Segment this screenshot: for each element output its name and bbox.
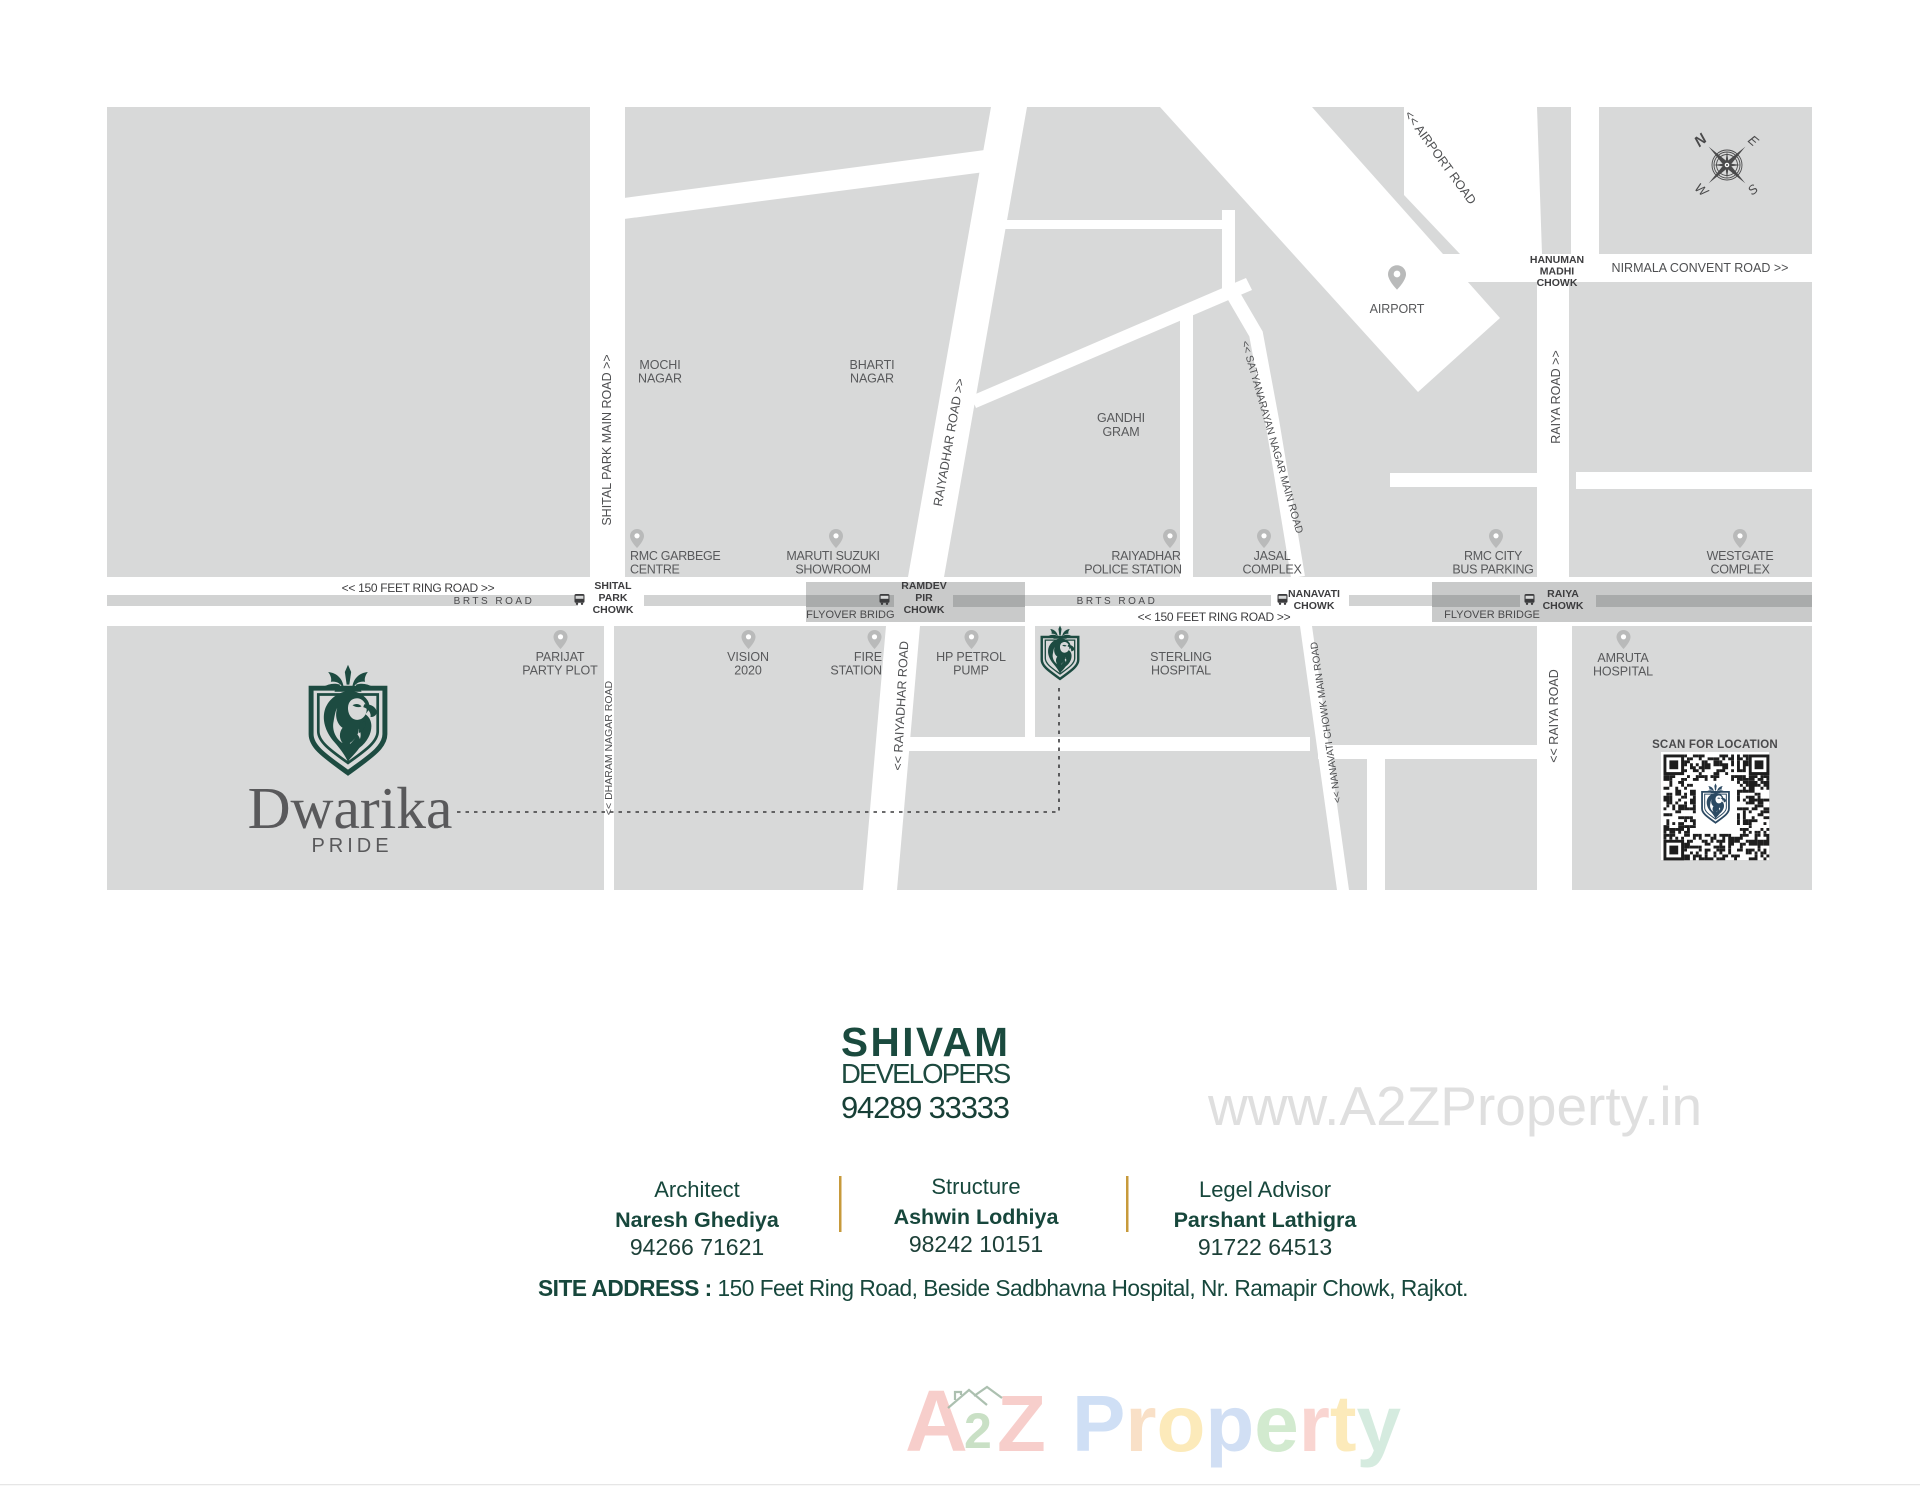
- svg-text:Structure: Structure: [931, 1174, 1020, 1199]
- svg-text:SHOWROOM: SHOWROOM: [795, 563, 870, 577]
- svg-text:CHOWK: CHOWK: [904, 604, 945, 616]
- svg-text:SCAN FOR LOCATION: SCAN FOR LOCATION: [1652, 739, 1778, 751]
- svg-text:NANAVATI: NANAVATI: [1288, 588, 1340, 600]
- svg-text:94289 33333: 94289 33333: [841, 1090, 1009, 1125]
- svg-text:2: 2: [964, 1403, 992, 1459]
- svg-text:Ashwin Lodhiya: Ashwin Lodhiya: [894, 1205, 1060, 1229]
- svg-text:BRTS ROAD: BRTS ROAD: [1077, 596, 1158, 607]
- svg-text:<< DHARAM NAGAR ROAD: << DHARAM NAGAR ROAD: [603, 680, 615, 815]
- svg-text:FLYOVER BRIDGE: FLYOVER BRIDGE: [1444, 609, 1540, 621]
- svg-text:STATION: STATION: [830, 664, 882, 678]
- svg-text:AIRPORT: AIRPORT: [1370, 302, 1425, 316]
- svg-text:GRAM: GRAM: [1102, 425, 1139, 439]
- svg-text:www.A2ZProperty.in: www.A2ZProperty.in: [1207, 1075, 1702, 1137]
- svg-text:PARK: PARK: [599, 592, 628, 604]
- svg-text:HOSPITAL: HOSPITAL: [1151, 664, 1211, 678]
- svg-text:94266 71621: 94266 71621: [630, 1234, 764, 1260]
- svg-text:RAIYA ROAD >>: RAIYA ROAD >>: [1549, 350, 1563, 444]
- svg-text:PARIJAT: PARIJAT: [536, 650, 585, 664]
- svg-text:Architect: Architect: [654, 1177, 740, 1202]
- svg-text:RAMDEV: RAMDEV: [901, 580, 947, 592]
- svg-text:BHARTI: BHARTI: [849, 358, 894, 372]
- svg-text:MADHI: MADHI: [1540, 266, 1574, 278]
- svg-text:MARUTI SUZUKI: MARUTI SUZUKI: [786, 549, 879, 563]
- svg-text:FLYOVER BRIDGE: FLYOVER BRIDGE: [806, 609, 902, 621]
- svg-text:HANUMAN: HANUMAN: [1530, 254, 1584, 266]
- svg-text:BUS PARKING: BUS PARKING: [1452, 563, 1533, 577]
- svg-text:Z: Z: [997, 1379, 1046, 1468]
- svg-text:Dwarika: Dwarika: [248, 775, 453, 841]
- svg-text:WESTGATE: WESTGATE: [1707, 549, 1774, 563]
- svg-text:NIRMALA CONVENT ROAD >>: NIRMALA CONVENT ROAD >>: [1612, 261, 1789, 275]
- svg-text:91722 64513: 91722 64513: [1198, 1234, 1332, 1260]
- svg-text:DEVELOPERS: DEVELOPERS: [841, 1058, 1011, 1089]
- svg-text:COMPLEX: COMPLEX: [1242, 563, 1302, 577]
- svg-text:PUMP: PUMP: [953, 664, 989, 678]
- svg-text:CHOWK: CHOWK: [1294, 600, 1335, 612]
- svg-text:<< 150 FEET RING ROAD >>: << 150 FEET RING ROAD >>: [1138, 610, 1291, 624]
- svg-text:COMPLEX: COMPLEX: [1710, 563, 1770, 577]
- svg-text:POLICE STATION: POLICE STATION: [1084, 563, 1182, 577]
- svg-text:Naresh Ghediya: Naresh Ghediya: [615, 1208, 780, 1232]
- svg-text:RMC CITY: RMC CITY: [1464, 549, 1523, 563]
- svg-text:VISION: VISION: [727, 650, 769, 664]
- svg-text:Parshant Lathigra: Parshant Lathigra: [1174, 1208, 1358, 1232]
- svg-text:RAIYADHAR: RAIYADHAR: [1111, 549, 1181, 563]
- svg-text:PARTY PLOT: PARTY PLOT: [522, 664, 598, 678]
- svg-text:AMRUTA: AMRUTA: [1597, 651, 1649, 665]
- svg-text:CHOWK: CHOWK: [593, 604, 634, 616]
- svg-text:HP PETROL: HP PETROL: [936, 650, 1006, 664]
- svg-text:<< 150 FEET RING ROAD >>: << 150 FEET RING ROAD >>: [342, 581, 495, 595]
- svg-text:<< RAIYA ROAD: << RAIYA ROAD: [1547, 669, 1561, 763]
- svg-text:98242 10151: 98242 10151: [909, 1231, 1043, 1257]
- svg-text:GANDHI: GANDHI: [1097, 411, 1145, 425]
- svg-text:JASAL: JASAL: [1254, 549, 1291, 563]
- svg-text:SITE ADDRESS : 150 Feet Ring R: SITE ADDRESS : 150 Feet Ring Road, Besid…: [538, 1275, 1468, 1301]
- svg-text:HOSPITAL: HOSPITAL: [1593, 665, 1653, 679]
- svg-text:Legel Advisor: Legel Advisor: [1199, 1177, 1331, 1202]
- svg-text:FIRE: FIRE: [854, 650, 882, 664]
- svg-text:NAGAR: NAGAR: [850, 372, 894, 386]
- svg-text:CHOWK: CHOWK: [1543, 600, 1584, 612]
- svg-text:2020: 2020: [734, 664, 762, 678]
- svg-text:CHOWK: CHOWK: [1537, 277, 1578, 289]
- svg-text:BRTS ROAD: BRTS ROAD: [454, 596, 535, 607]
- svg-text:SHITAL PARK MAIN ROAD >>: SHITAL PARK MAIN ROAD >>: [600, 354, 614, 525]
- svg-text:NAGAR: NAGAR: [638, 372, 682, 386]
- svg-text:RAIYA: RAIYA: [1547, 588, 1579, 600]
- svg-text:CENTRE: CENTRE: [630, 563, 680, 577]
- svg-text:MOCHI: MOCHI: [639, 358, 680, 372]
- svg-text:PIR: PIR: [915, 592, 933, 604]
- svg-text:SHITAL: SHITAL: [594, 580, 632, 592]
- svg-text:Property: Property: [1072, 1379, 1402, 1468]
- svg-text:A: A: [905, 1373, 968, 1470]
- svg-text:RMC GARBEGE: RMC GARBEGE: [630, 549, 720, 563]
- svg-text:PRIDE: PRIDE: [311, 835, 392, 857]
- svg-text:STERLING: STERLING: [1150, 650, 1212, 664]
